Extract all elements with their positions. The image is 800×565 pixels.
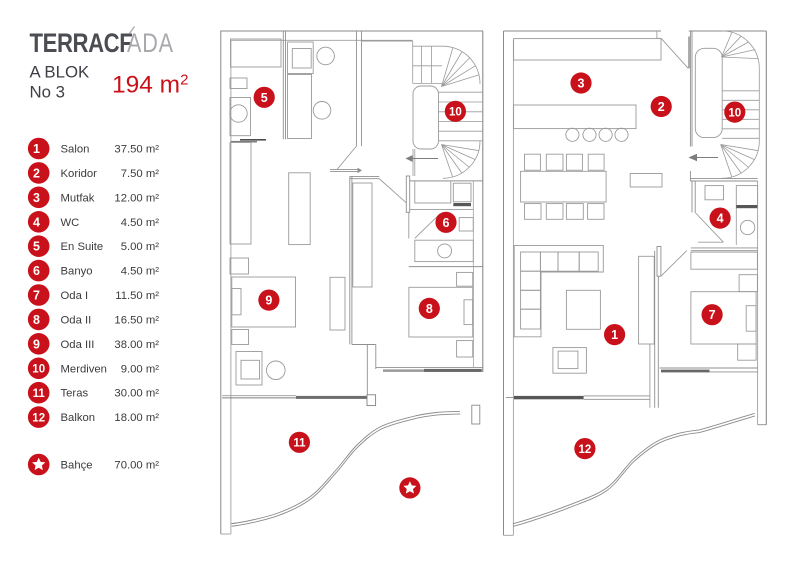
svg-text:7.50 m²: 7.50 m² [121, 168, 160, 180]
svg-text:3: 3 [33, 191, 40, 205]
svg-text:1: 1 [611, 328, 618, 342]
svg-text:12.00 m²: 12.00 m² [114, 192, 159, 204]
svg-text:5: 5 [261, 91, 268, 105]
svg-text:A BLOK: A BLOK [30, 63, 90, 82]
svg-text:6: 6 [443, 216, 450, 230]
svg-text:Koridor: Koridor [61, 168, 98, 180]
svg-text:8: 8 [33, 313, 40, 327]
svg-text:En Suite: En Suite [61, 241, 104, 253]
svg-text:10: 10 [728, 107, 741, 119]
svg-text:11: 11 [33, 388, 46, 400]
svg-text:Oda III: Oda III [61, 339, 95, 351]
svg-text:11: 11 [293, 438, 306, 450]
svg-text:2: 2 [33, 166, 40, 180]
svg-text:12: 12 [32, 412, 45, 424]
svg-text:4: 4 [717, 212, 724, 226]
svg-text:9: 9 [33, 337, 40, 351]
svg-text:18.00 m²: 18.00 m² [114, 412, 159, 424]
svg-text:10: 10 [449, 107, 462, 119]
svg-text:4.50 m²: 4.50 m² [121, 266, 160, 278]
svg-text:7: 7 [709, 308, 716, 322]
svg-text:TERRACF: TERRACF [30, 29, 133, 59]
svg-text:2: 2 [658, 100, 665, 114]
svg-text:Oda II: Oda II [61, 314, 92, 326]
svg-text:194 m2: 194 m2 [112, 72, 188, 99]
svg-text:37.50 m²: 37.50 m² [114, 144, 159, 156]
svg-text:4.50 m²: 4.50 m² [121, 217, 160, 229]
svg-text:Merdiven: Merdiven [61, 363, 107, 375]
svg-text:6: 6 [33, 264, 40, 278]
svg-text:Balkon: Balkon [61, 412, 96, 424]
svg-text:Salon: Salon [61, 144, 90, 156]
svg-text:30.00 m²: 30.00 m² [114, 388, 159, 400]
svg-text:ADA: ADA [127, 29, 174, 59]
svg-text:12: 12 [579, 444, 592, 456]
svg-text:10: 10 [32, 364, 45, 376]
svg-text:4: 4 [33, 215, 40, 229]
svg-text:Teras: Teras [61, 388, 89, 400]
svg-text:9: 9 [265, 294, 272, 308]
svg-text:5.00 m²: 5.00 m² [121, 241, 160, 253]
svg-text:Bahçe: Bahçe [61, 460, 93, 472]
svg-text:5: 5 [33, 240, 40, 254]
svg-text:3: 3 [578, 77, 585, 91]
svg-text:No 3: No 3 [30, 83, 65, 102]
svg-text:Banyo: Banyo [61, 266, 93, 278]
svg-text:38.00 m²: 38.00 m² [114, 339, 159, 351]
svg-text:Mutfak: Mutfak [61, 192, 95, 204]
svg-text:9.00 m²: 9.00 m² [121, 363, 160, 375]
svg-text:16.50 m²: 16.50 m² [114, 314, 159, 326]
svg-text:8: 8 [426, 302, 433, 316]
svg-text:Oda I: Oda I [61, 290, 89, 302]
svg-text:1: 1 [33, 142, 40, 156]
svg-text:70.00 m²: 70.00 m² [114, 460, 159, 472]
svg-text:11.50 m²: 11.50 m² [115, 290, 159, 302]
svg-text:WC: WC [61, 217, 80, 229]
svg-text:7: 7 [33, 289, 40, 303]
